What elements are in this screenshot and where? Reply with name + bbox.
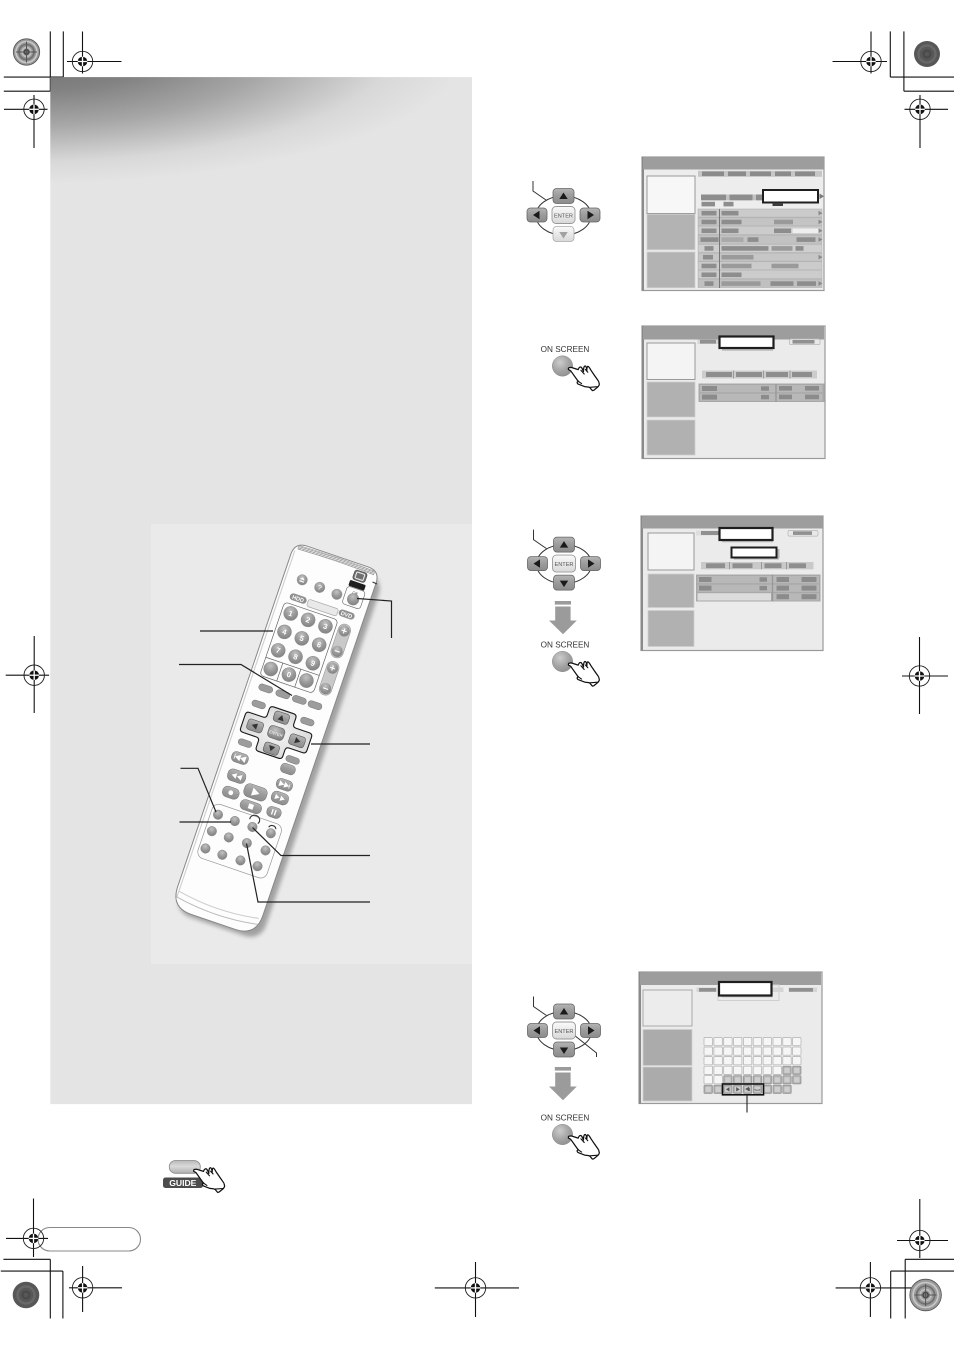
svg-text:GUIDE: GUIDE [169, 1178, 196, 1188]
